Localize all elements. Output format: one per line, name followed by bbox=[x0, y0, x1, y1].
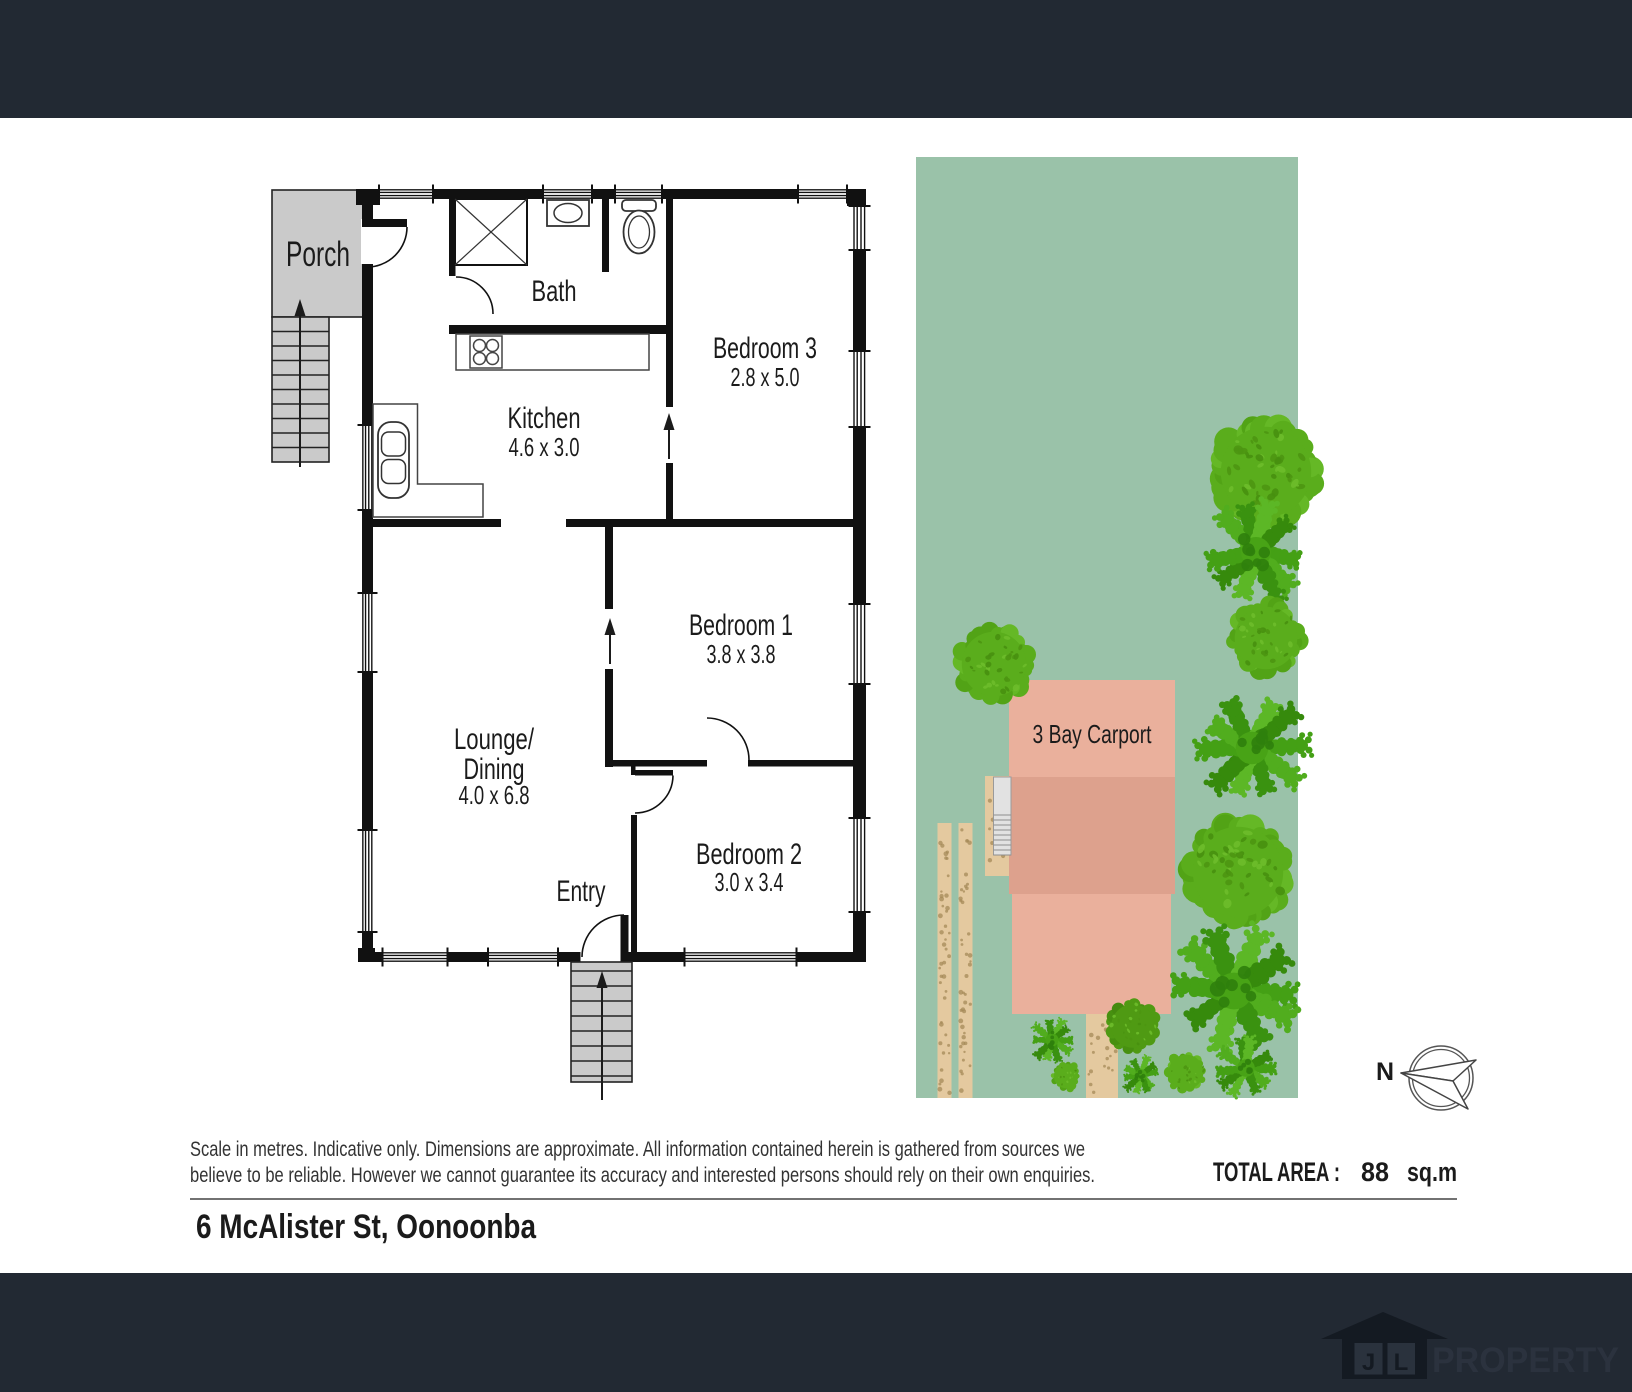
svg-text:Kitchen: Kitchen bbox=[508, 402, 581, 435]
svg-text:Porch: Porch bbox=[286, 235, 350, 274]
svg-text:3 Bay Carport: 3 Bay Carport bbox=[1033, 719, 1153, 749]
svg-text:88: 88 bbox=[1361, 1157, 1389, 1187]
svg-text:Entry: Entry bbox=[557, 875, 606, 908]
svg-text:3.8 x 3.8: 3.8 x 3.8 bbox=[707, 639, 776, 669]
svg-text:Scale in metres. Indicative on: Scale in metres. Indicative only. Dimens… bbox=[190, 1138, 1085, 1161]
svg-text:2.8 x 5.0: 2.8 x 5.0 bbox=[731, 362, 800, 392]
svg-text:Lounge/: Lounge/ bbox=[454, 723, 534, 756]
svg-text:sq.m: sq.m bbox=[1407, 1157, 1457, 1187]
svg-text:4.0 x 6.8: 4.0 x 6.8 bbox=[459, 780, 530, 810]
svg-text:J: J bbox=[1362, 1349, 1375, 1376]
svg-text:N: N bbox=[1376, 1058, 1394, 1086]
svg-text:Bedroom 3: Bedroom 3 bbox=[713, 332, 817, 365]
svg-text:believe to be reliable. Howeve: believe to be reliable. However we canno… bbox=[190, 1164, 1095, 1187]
svg-text:Bedroom 1: Bedroom 1 bbox=[689, 609, 793, 642]
svg-text:L: L bbox=[1394, 1349, 1409, 1376]
svg-text:6 McAlister St, Oonoonba: 6 McAlister St, Oonoonba bbox=[196, 1208, 537, 1246]
svg-text:3.0 x 3.4: 3.0 x 3.4 bbox=[715, 867, 784, 897]
svg-text:4.6 x 3.0: 4.6 x 3.0 bbox=[509, 432, 580, 462]
svg-text:PROPERTY: PROPERTY bbox=[1432, 1341, 1619, 1380]
svg-text:TOTAL AREA :: TOTAL AREA : bbox=[1213, 1157, 1340, 1187]
svg-text:Bath: Bath bbox=[532, 275, 577, 308]
